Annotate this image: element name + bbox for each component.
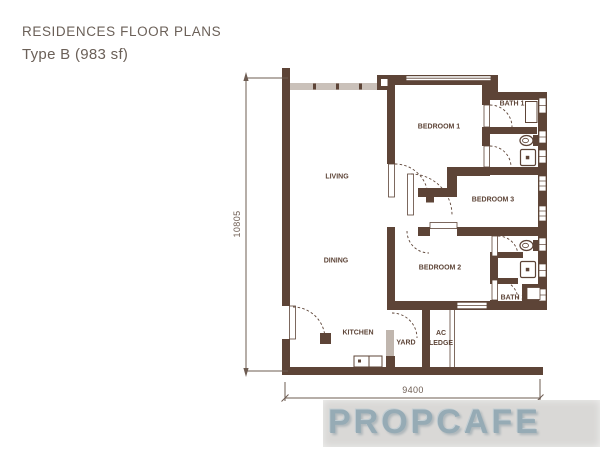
bath2-shower-tray bbox=[527, 288, 540, 300]
kitchen-sink-icon bbox=[354, 356, 382, 367]
floor-plan-drawing bbox=[0, 0, 600, 450]
watermark-banner: PROPCAFE bbox=[323, 400, 600, 447]
room-label-bedroom2: BEDROOM 2 bbox=[419, 265, 461, 272]
room-label-dining: DINING bbox=[324, 258, 349, 265]
watermark-text: PROPCAFE bbox=[328, 403, 600, 443]
bath1-shower-tray bbox=[526, 102, 538, 123]
room-label-yard: YARD bbox=[396, 340, 415, 347]
bath1-sink-icon bbox=[521, 150, 536, 166]
bath1-toilet-icon bbox=[520, 135, 538, 146]
room-label-bath2: BATH 2 bbox=[501, 295, 526, 302]
living-window-band bbox=[290, 79, 388, 90]
room-label-bath1: BATH 1 bbox=[500, 101, 525, 108]
bath2-sink-icon bbox=[521, 262, 536, 278]
yard-louver-door bbox=[386, 330, 394, 356]
bath2-toilet-icon bbox=[520, 240, 538, 251]
room-label-bedroom1: BEDROOM 1 bbox=[418, 124, 460, 131]
floor-plan-page: RESIDENCES FLOOR PLANS Type B (983 sf) bbox=[0, 0, 600, 450]
bedroom2-window bbox=[457, 302, 487, 308]
room-label-living: LIVING bbox=[325, 174, 348, 181]
room-label-ac-ledge: AC LEDGE bbox=[428, 329, 454, 349]
dimension-height-label: 10805 bbox=[232, 210, 242, 237]
room-label-bedroom3: BEDROOM 3 bbox=[472, 197, 514, 204]
room-label-kitchen: KITCHEN bbox=[342, 330, 373, 337]
dimension-width-label: 9400 bbox=[402, 385, 424, 395]
bedroom1-window bbox=[406, 76, 491, 81]
